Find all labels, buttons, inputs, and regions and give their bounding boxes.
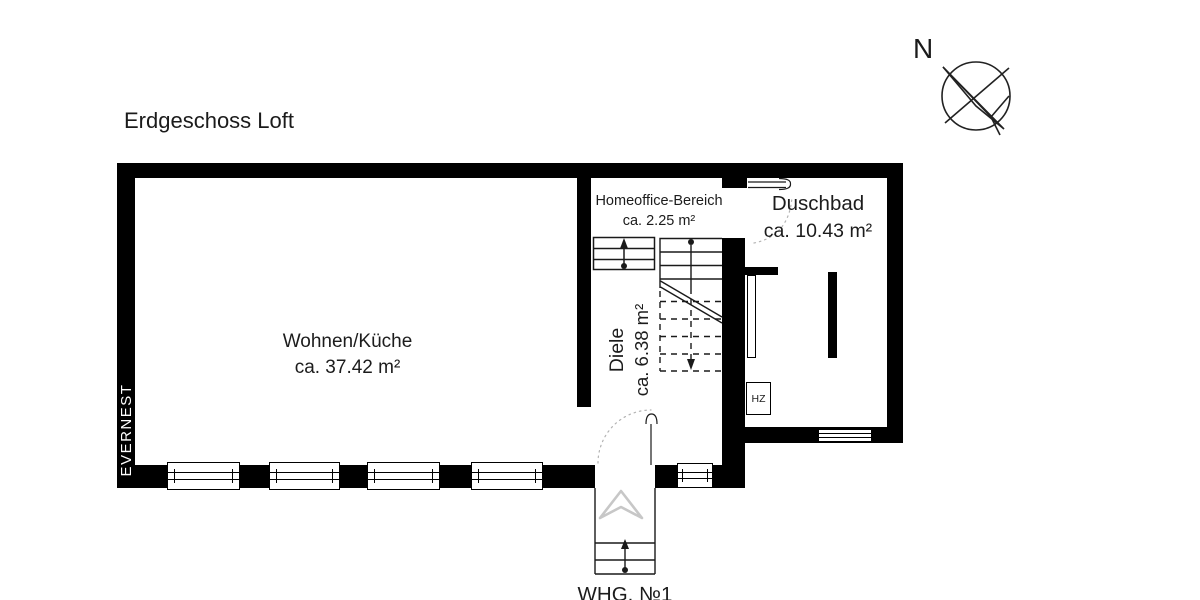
window-glazing [269, 472, 340, 479]
room-name: Diele [604, 279, 630, 421]
window-tick [707, 469, 708, 482]
window-4 [471, 462, 543, 490]
unit-label: WHG. №1 [545, 581, 705, 600]
room-area: ca. 2.25 m² [586, 212, 732, 232]
room-label-diele: Diele ca. 6.38 m² [604, 279, 652, 421]
watermark-text: EVERNEST [117, 372, 135, 488]
compass-icon [942, 62, 1010, 135]
wall-stairs-right [722, 238, 745, 488]
entrance-steps [595, 488, 655, 574]
window-tick [174, 469, 175, 484]
floor-plan-canvas: Erdgeschoss Loft HZ [0, 0, 1200, 600]
window-tick [535, 469, 536, 484]
shower-partition [828, 272, 837, 358]
room-area: ca. 6.38 m² [630, 279, 655, 421]
page-title: Erdgeschoss Loft [124, 108, 294, 134]
window-tick [374, 469, 375, 484]
room-name: Homeoffice-Bereich [586, 192, 732, 212]
window-3 [367, 462, 440, 490]
window-bath [818, 429, 872, 442]
entrance-direction-arrow [600, 491, 642, 518]
wall-top [117, 163, 903, 178]
room-area: ca. 10.43 m² [744, 218, 892, 244]
window-glazing [167, 472, 240, 479]
window-tick [478, 469, 479, 484]
room-label-homeoffice: Homeoffice-Bereich ca. 2.25 m² [586, 192, 732, 231]
window-1 [167, 462, 240, 490]
heating-unit-box: HZ [746, 382, 771, 415]
room-name: Wohnen/Küche [230, 329, 465, 355]
window-2 [269, 462, 340, 490]
heating-unit-label: HZ [752, 393, 766, 405]
window-glazing [471, 472, 543, 479]
window-tick [682, 469, 683, 482]
window-tick [276, 469, 277, 484]
room-label-duschbad: Duschbad ca. 10.43 m² [744, 190, 892, 244]
main-staircase [660, 239, 722, 372]
plan-linework [0, 0, 1200, 600]
window-hall [677, 463, 713, 488]
window-glazing [818, 433, 872, 437]
wall-stub-top [722, 178, 747, 188]
homeoffice-stairs [594, 238, 655, 270]
room-label-wohnen-kueche: Wohnen/Küche ca. 37.42 m² [230, 329, 465, 380]
room-name: Duschbad [744, 190, 892, 218]
window-tick [232, 469, 233, 484]
window-tick [332, 469, 333, 484]
compass-north-label: N [913, 33, 933, 65]
window-glazing [367, 472, 440, 479]
bath-radiator [747, 275, 756, 358]
window-tick [432, 469, 433, 484]
wall-stub-bath [743, 267, 778, 275]
room-area: ca. 37.42 m² [230, 355, 465, 381]
